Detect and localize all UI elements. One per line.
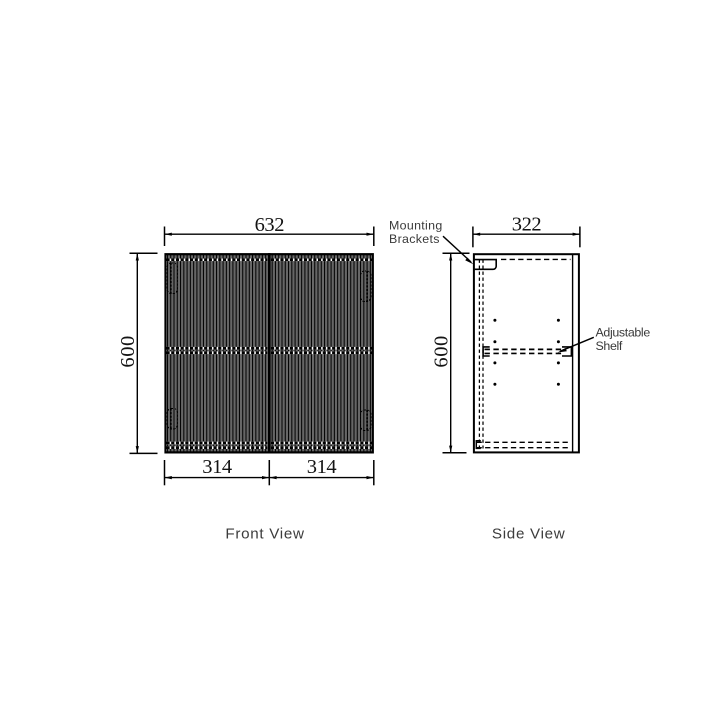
svg-text:314: 314 [202, 456, 232, 478]
svg-text:632: 632 [255, 214, 285, 236]
svg-text:Mounting: Mounting [389, 218, 443, 232]
svg-text:Brackets: Brackets [389, 232, 440, 246]
svg-text:Adjustable: Adjustable [596, 326, 651, 340]
svg-text:600: 600 [431, 335, 453, 367]
svg-text:314: 314 [307, 456, 337, 478]
svg-text:322: 322 [512, 214, 542, 236]
svg-text:Side View: Side View [492, 525, 566, 542]
svg-text:Shelf: Shelf [596, 339, 623, 353]
svg-text:Front View: Front View [225, 525, 304, 542]
svg-text:600: 600 [117, 335, 139, 367]
